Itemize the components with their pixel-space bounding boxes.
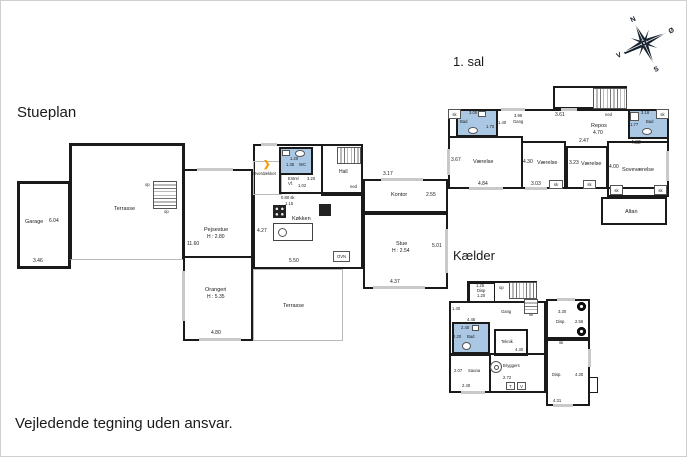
dimension-label: 3.16 (641, 111, 649, 116)
washer-icon: V (517, 382, 526, 390)
dimension-label: 3.46 (33, 259, 43, 265)
room-label: Garage (25, 219, 43, 225)
first-floor-title: 1. sal (453, 54, 484, 69)
wall-segment (279, 147, 281, 194)
room-label: Altan (625, 209, 638, 215)
ventilation-fan-icon (577, 302, 586, 311)
window-marker (588, 349, 591, 367)
wall-segment (279, 192, 363, 194)
shower-icon (630, 112, 639, 121)
dimension-label: 6.04 (49, 219, 59, 225)
room-label: Køkken (292, 216, 311, 222)
closet-icon: sk (583, 180, 596, 189)
ventilation-fan-icon (577, 327, 586, 336)
dimension-label: H : 2.80 (207, 235, 225, 241)
sink-icon (642, 128, 652, 135)
window-marker (666, 151, 669, 181)
room-label: Værelse (537, 160, 557, 166)
window-marker (197, 168, 233, 171)
closet-icon: sk (656, 109, 669, 119)
room-label: WC (299, 163, 306, 168)
stairs-label: ned (350, 185, 357, 190)
dimension-label: 1.35 (286, 163, 294, 168)
dimension-label: 1.70 (486, 125, 494, 130)
stairs-up-basement (509, 282, 537, 299)
stairs-label: op (164, 210, 169, 215)
closet-icon: sk (610, 185, 623, 195)
dimension-label: 1.40 (498, 121, 506, 126)
room-label: Bad (646, 120, 653, 125)
room-label: Terrasse (114, 206, 135, 212)
window-marker (261, 143, 277, 146)
compass-south-label: S (653, 65, 660, 73)
window-marker (381, 178, 423, 181)
window-marker (557, 298, 575, 301)
dimension-label: 3.17 (383, 172, 393, 178)
dimension-label: 3.00 (469, 111, 477, 116)
room-label: Pejsestue (204, 227, 228, 233)
dimension-label: 2.07 (454, 369, 462, 374)
room-label: Bad (467, 335, 474, 340)
dryer-icon: T (506, 382, 515, 390)
dimension-label: 2.47 (579, 139, 589, 145)
stairs-down-hall (337, 147, 361, 164)
oven-icon: OVN (333, 251, 350, 262)
dimension-label: 2.20 (453, 335, 461, 340)
sink-icon (282, 150, 290, 156)
sink-icon (478, 111, 486, 117)
dimension-label: 4.70 (593, 131, 603, 137)
room-label: Disp. (552, 373, 562, 378)
compass-rose: N Ø S V (609, 7, 679, 79)
window-marker (461, 391, 485, 394)
room-label: Overdækket (253, 172, 276, 177)
dimension-label: 4.27 (257, 229, 267, 235)
room-label: Gang (501, 310, 511, 315)
window-marker (373, 286, 425, 289)
room-label: Sauna (468, 369, 480, 374)
dimension-label: 1.77 (630, 123, 638, 128)
washing-machine-icon (490, 361, 502, 373)
room-label: Terrasse (283, 303, 304, 309)
stairs-label: op (145, 183, 150, 188)
room-label: Værelse (581, 161, 601, 167)
room-label: Bad (460, 120, 467, 125)
window-marker (501, 108, 525, 111)
room-label: Disp. (556, 320, 566, 325)
entrance-arrow-icon: ❯ (263, 160, 271, 169)
dimension-label: 11.60 (187, 242, 199, 248)
basement-title: Kælder (453, 248, 495, 263)
stairs-up-terrasse (153, 181, 177, 209)
stairs-landing (524, 299, 538, 314)
dishwasher-icon (278, 228, 287, 237)
dimension-label: 4.30 (523, 160, 533, 166)
closet-label: sk (559, 341, 563, 346)
door-recess (589, 377, 598, 393)
dimension-label: 3.23 (569, 161, 579, 167)
closet-icon: sk (654, 185, 667, 195)
sink-icon (472, 325, 479, 331)
room-label: Værelse (473, 159, 493, 165)
toilet-icon (468, 127, 478, 134)
window-marker (182, 271, 185, 321)
dimension-label: 2.55 (426, 193, 436, 199)
toilet-icon (462, 342, 471, 350)
dimension-label: H : 5.35 (207, 295, 225, 301)
window-marker (447, 149, 450, 175)
dimension-label: 2.40 (461, 326, 469, 331)
dimension-label: 1.40 (452, 307, 460, 312)
dimension-label: 1.15 (285, 202, 293, 207)
ground-floor-title: Stueplan (17, 104, 76, 121)
room-label: Teknik (501, 340, 513, 345)
dimension-label: 1.02 (298, 184, 306, 189)
compass-east-label: Ø (668, 27, 676, 36)
room-label: Orangeri (205, 287, 226, 293)
floorplan-sheet: Stueplan Garage 6.04 3.46 Terrasse op op… (0, 0, 687, 457)
room-label: Bryggers (503, 364, 520, 369)
compass-west-label: V (615, 51, 622, 59)
toilet-icon (295, 150, 305, 157)
window-marker (553, 404, 573, 407)
dimension-label: 4.00 (609, 165, 619, 171)
room-label: Kontor (391, 192, 407, 198)
room-label: Vf. (288, 182, 293, 187)
dimension-label: 3.20 (307, 177, 315, 182)
dimension-label: 4.30 (575, 373, 583, 378)
room-label: Repos (591, 123, 607, 129)
dimension-label: 5.50 (289, 259, 299, 265)
window-marker (525, 187, 547, 190)
dimension-label: 2.40 (462, 384, 470, 389)
dimension-label: 4.37 (390, 280, 400, 286)
stairs-label: op (499, 286, 504, 291)
dimension-label: 3.61 (555, 113, 565, 119)
window-marker (561, 108, 577, 111)
room-label: Soveværelse (622, 167, 654, 173)
dimension-label: 5.01 (432, 244, 442, 250)
window-marker (445, 229, 448, 273)
dimension-label: H : 2.54 (392, 249, 410, 255)
room-label: Stue (396, 241, 407, 247)
dimension-label: 3.67 (451, 158, 461, 164)
room-label: Hall (339, 170, 348, 176)
disclaimer-text: Vejledende tegning uden ansvar. (15, 415, 233, 432)
dimension-label: 2.56 (575, 320, 583, 325)
dimension-label: 4.80 (211, 331, 221, 337)
window-marker (469, 187, 503, 190)
dimension-label: 2.72 (503, 376, 511, 381)
room-label: Gang (513, 120, 523, 125)
chimney-icon (319, 204, 331, 216)
closet-icon: sk (448, 109, 461, 119)
stairs-first-floor (593, 88, 627, 109)
stairs-label: ned (605, 113, 612, 118)
dimension-label: 1.20 (477, 294, 485, 299)
dimension-label: 3.30 (558, 310, 566, 315)
stove-icon (273, 205, 286, 218)
compass-north-label: N (629, 16, 637, 24)
wall-segment (449, 353, 546, 355)
window-marker (199, 338, 241, 341)
closet-icon: sk (549, 180, 563, 189)
